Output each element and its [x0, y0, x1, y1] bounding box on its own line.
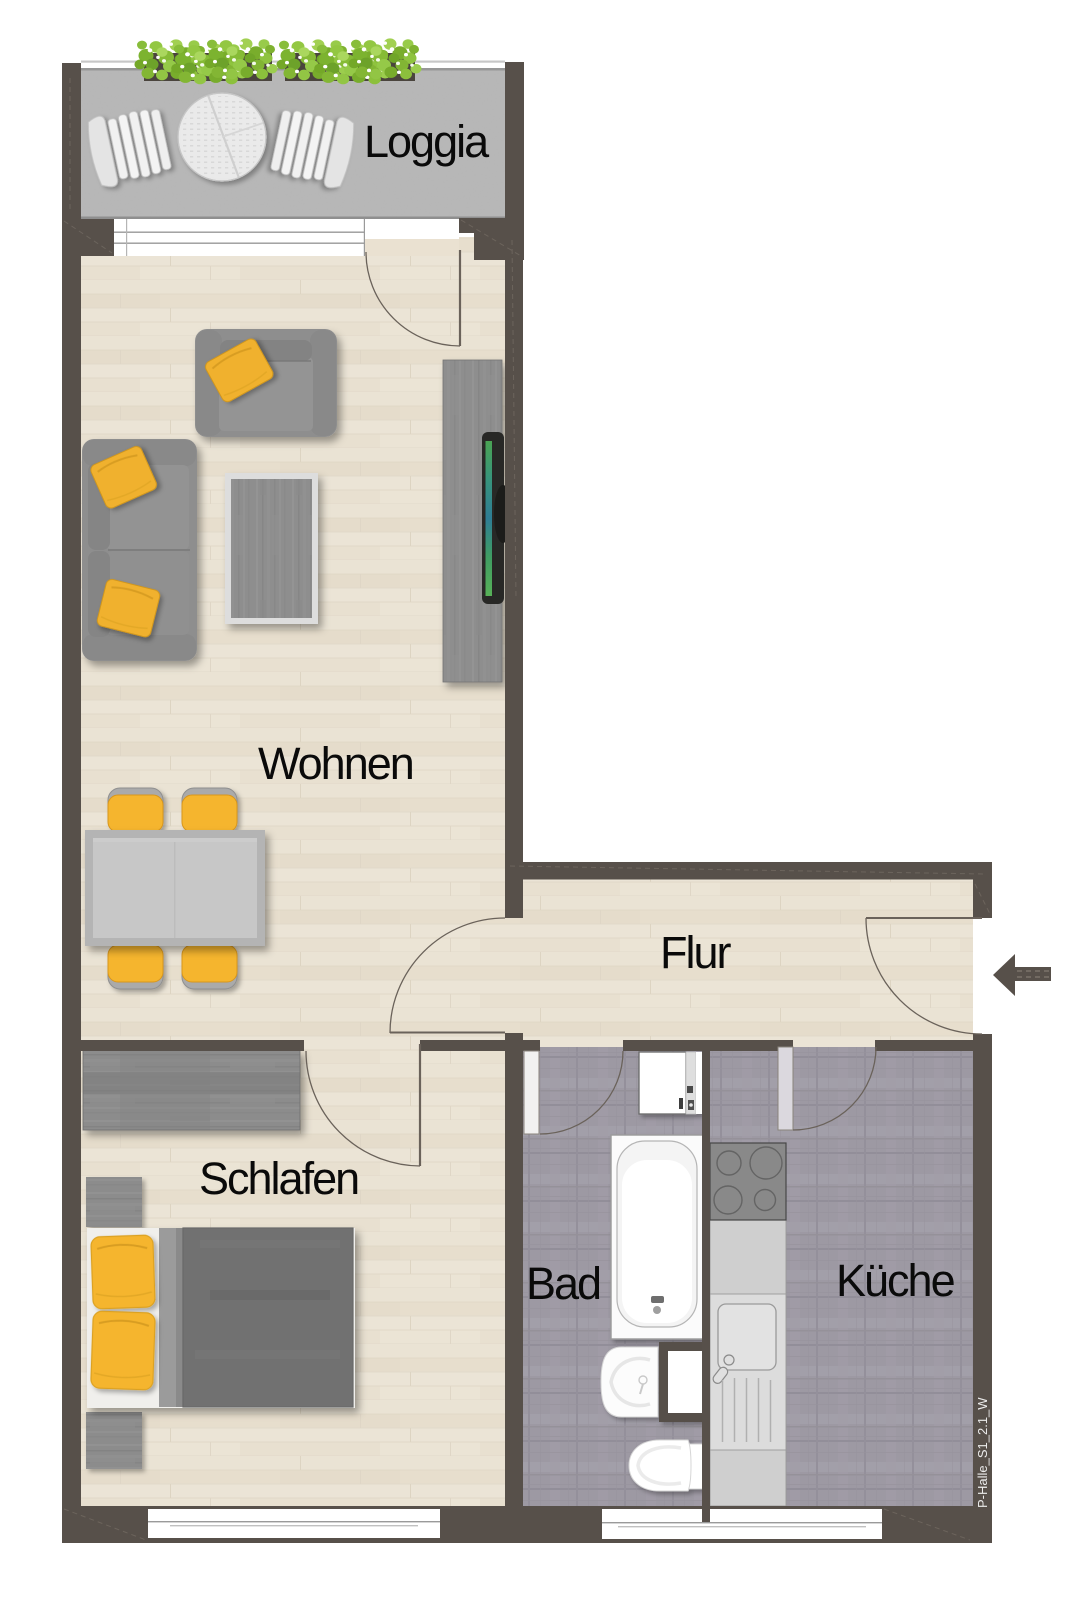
svg-text:Küche: Küche	[836, 1255, 955, 1306]
svg-text:Schlafen: Schlafen	[199, 1153, 358, 1204]
svg-text:Bad: Bad	[526, 1258, 600, 1309]
svg-text:Flur: Flur	[660, 927, 732, 978]
svg-text:Loggia: Loggia	[364, 116, 490, 167]
svg-text:P-Halle_S1_2.1_W: P-Halle_S1_2.1_W	[975, 1397, 990, 1508]
svg-text:Wohnen: Wohnen	[258, 738, 413, 789]
